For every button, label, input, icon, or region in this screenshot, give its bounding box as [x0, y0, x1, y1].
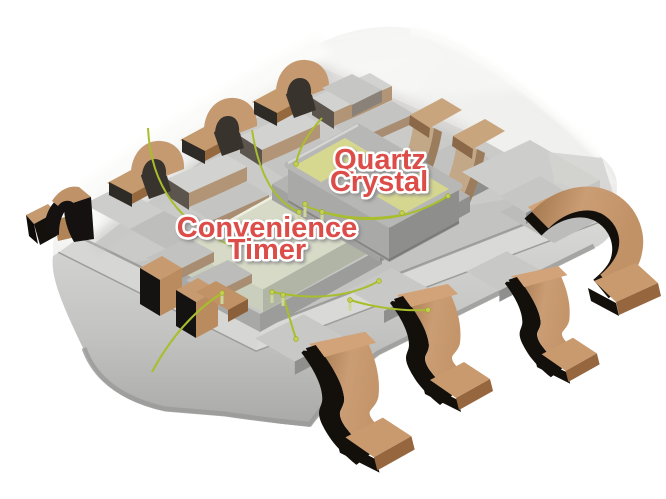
- svg-text:Crystal: Crystal: [330, 166, 428, 198]
- svg-text:Timer: Timer: [228, 234, 306, 266]
